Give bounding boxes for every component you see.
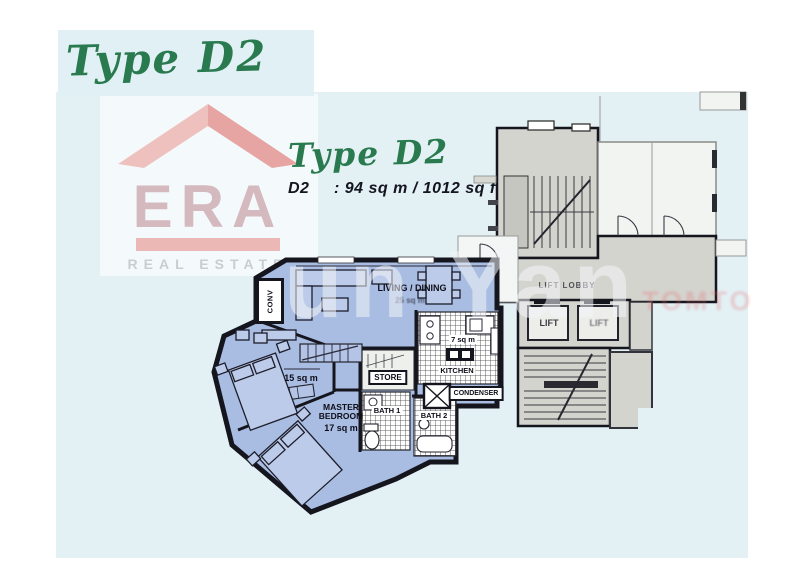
master-bedroom-area-label: 17 sq m [324,423,358,433]
living-dining-area-label: 25 sq m [395,296,425,306]
store-label: STORE [368,370,407,385]
bath1-label: BATH 1 [372,406,403,415]
master-bedroom-label: MASTER BEDROOM [307,403,375,421]
conv-ledge: CONV [256,278,284,324]
floorplan-drawing [0,0,800,562]
condenser-label: CONDENSER [449,386,504,401]
lift-shafts [518,299,652,350]
bath1-room [362,392,410,450]
window [318,257,354,263]
bath2-label: BATH 2 [419,411,450,420]
louvre-window [300,344,362,362]
bedroom2-area-label: 15 sq m [284,373,318,383]
upper-right-room [598,92,746,236]
lift-left-label: LIFT [540,318,559,328]
staircase-block-bottom [518,348,654,430]
lift-right-label: LIFT [590,318,609,328]
lift-lobby-label: LIFT LOBBY [538,281,595,290]
floorplan-page: ERA REAL ESTATE Type D2 Type D2 D2: 94 s… [0,0,800,562]
kitchen-label: KITCHEN [438,366,475,375]
window [398,257,434,263]
living-dining-label: LIVING / DINING [377,283,446,293]
condenser-unit [424,384,450,408]
kitchen-area-label: 7 sq m [449,335,477,344]
conv-label: CONV [266,289,275,313]
